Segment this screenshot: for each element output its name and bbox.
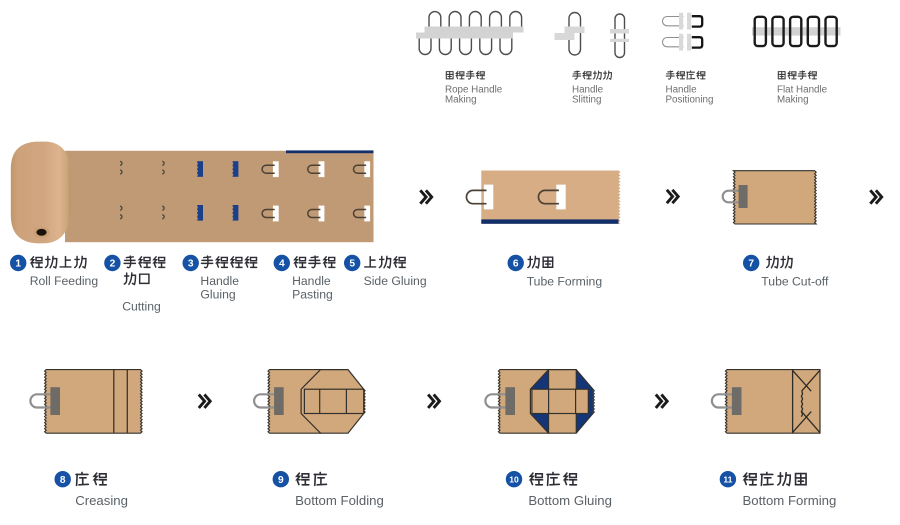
svg-text:Tube Forming: Tube Forming — [527, 274, 602, 288]
svg-text:Creasing: Creasing — [75, 493, 128, 508]
svg-text:Slitting: Slitting — [572, 94, 601, 105]
svg-text:7: 7 — [748, 259, 754, 270]
svg-text:Side Gluing: Side Gluing — [364, 274, 427, 288]
svg-text:5: 5 — [349, 259, 355, 270]
svg-text:9: 9 — [278, 475, 284, 486]
svg-text:10: 10 — [509, 474, 519, 484]
svg-text:8: 8 — [60, 475, 66, 486]
svg-text:4: 4 — [279, 259, 285, 270]
svg-text:3: 3 — [188, 259, 194, 270]
svg-text:Handle: Handle — [200, 274, 239, 288]
svg-text:Making: Making — [777, 94, 809, 105]
svg-text:1: 1 — [15, 259, 21, 270]
svg-text:Roll Feeding: Roll Feeding — [30, 274, 98, 288]
svg-text:11: 11 — [723, 474, 732, 484]
svg-text:Gluing: Gluing — [200, 288, 235, 302]
svg-text:Tube Cut-off: Tube Cut-off — [761, 274, 829, 288]
svg-text:Bottom Forming: Bottom Forming — [743, 493, 837, 508]
svg-text:2: 2 — [110, 259, 116, 270]
svg-text:Bottom Folding: Bottom Folding — [295, 493, 384, 508]
svg-text:Making: Making — [445, 94, 477, 105]
svg-text:Positioning: Positioning — [666, 94, 714, 105]
svg-text:Cutting: Cutting — [122, 299, 161, 313]
svg-text:Handle: Handle — [292, 274, 331, 288]
svg-text:Pasting: Pasting — [292, 288, 333, 302]
svg-text:Bottom Gluing: Bottom Gluing — [528, 493, 612, 508]
svg-text:6: 6 — [513, 259, 519, 270]
